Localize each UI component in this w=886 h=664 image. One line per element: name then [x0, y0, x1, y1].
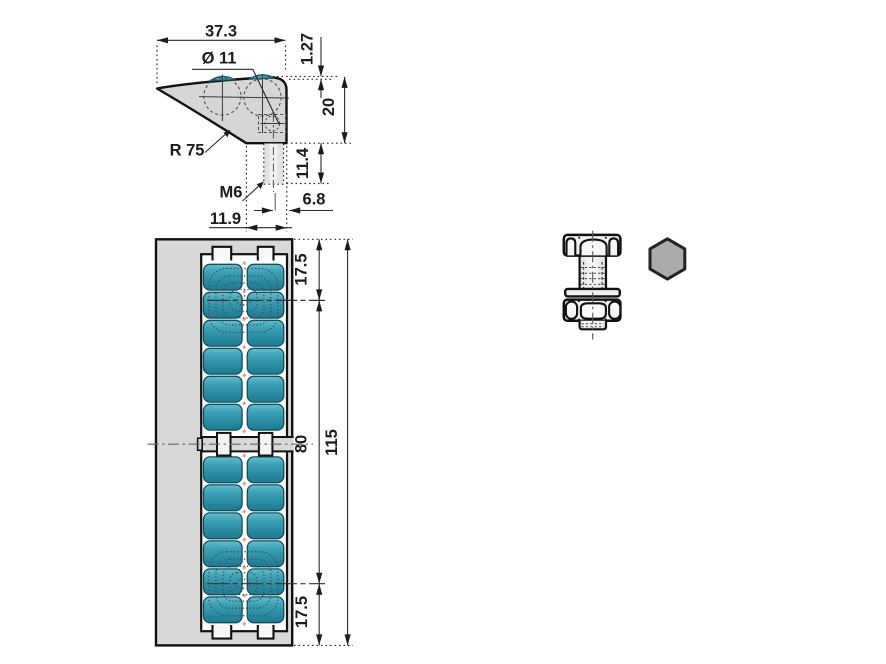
- svg-text:80: 80: [293, 435, 311, 453]
- svg-text:Ø 11: Ø 11: [202, 50, 237, 68]
- svg-text:115: 115: [323, 429, 341, 456]
- svg-text:17.5: 17.5: [293, 253, 311, 285]
- svg-text:M6: M6: [220, 184, 243, 202]
- svg-text:11.4: 11.4: [294, 147, 312, 179]
- svg-text:17.5: 17.5: [293, 596, 311, 628]
- svg-text:11.9: 11.9: [210, 210, 241, 228]
- svg-text:20: 20: [320, 98, 338, 116]
- svg-text:R 75: R 75: [170, 142, 205, 160]
- svg-text:6.8: 6.8: [303, 191, 326, 209]
- svg-text:1.27: 1.27: [299, 33, 317, 65]
- svg-text:37.3: 37.3: [205, 23, 237, 41]
